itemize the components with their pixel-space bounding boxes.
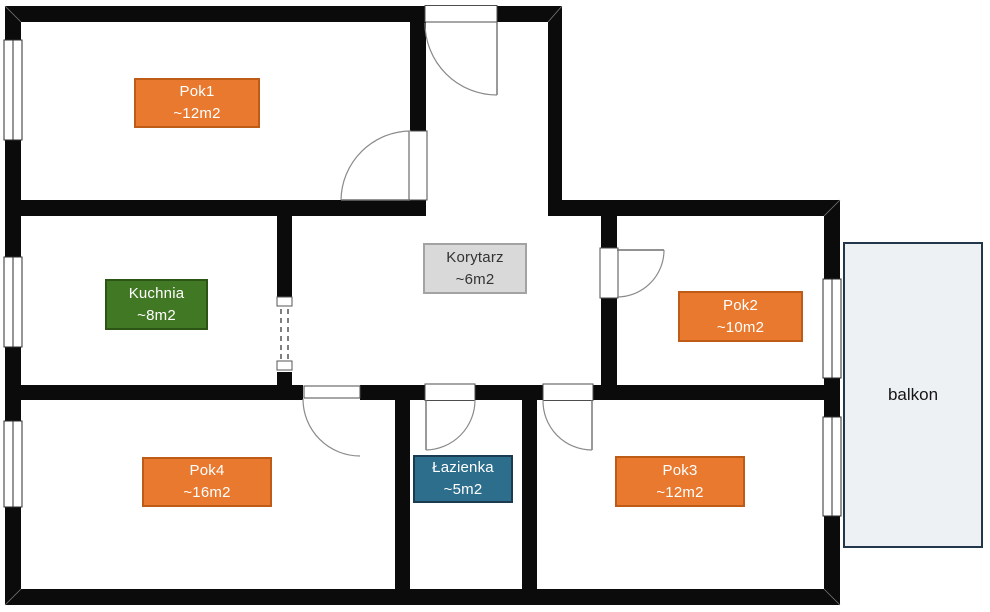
floorplan: Pok1 ~12m2 Kuchnia ~8m2 Korytarz ~6m2 Po… [0,0,990,612]
kitchen-opening [276,297,293,372]
wall-mid-horizontal [5,385,840,400]
wall-top-left [5,6,425,22]
door-pok1 [341,131,427,200]
entrance-door [425,6,497,96]
window-kuchnia [4,257,22,347]
window-pok1 [4,40,22,140]
room-label-pok1: Pok1 ~12m2 [134,78,260,128]
balcony: balkon [843,242,983,548]
wall-top-right-horizontal [548,200,840,216]
room-name: Pok4 [190,460,225,482]
wall-bottom-outer [5,589,840,605]
room-label-korytarz: Korytarz ~6m2 [423,243,527,294]
room-name: Pok1 [180,81,215,103]
room-area: ~6m2 [456,269,495,291]
wall-bathroom-right [522,400,537,594]
room-name: Kuchnia [129,283,185,305]
room-name: Korytarz [446,247,503,269]
door-bathroom [425,384,475,450]
room-name: Pok2 [723,295,758,317]
room-area: ~5m2 [444,479,483,501]
door-pok3 [543,384,593,450]
room-label-pok2: Pok2 ~10m2 [678,291,803,342]
wall-right-outer [824,200,840,605]
room-area: ~12m2 [173,103,220,125]
balcony-label: balkon [888,385,938,405]
room-label-pok3: Pok3 ~12m2 [615,456,745,507]
wall-corridor-right-upper [548,6,562,216]
door-pok4 [303,384,360,456]
window-pok3 [823,417,841,516]
room-label-lazienka: Łazienka ~5m2 [413,455,513,503]
room-area: ~8m2 [137,305,176,327]
wall-bathroom-left [395,400,410,594]
room-area: ~10m2 [717,317,764,339]
room-area: ~12m2 [656,482,703,504]
wall-pok2-left [601,216,617,400]
room-area: ~16m2 [183,482,230,504]
room-name: Pok3 [663,460,698,482]
room-name: Łazienka [432,457,494,479]
room-label-pok4: Pok4 ~16m2 [142,457,272,507]
wall-pok1-bottom [5,200,426,216]
door-pok2 [600,248,664,298]
room-label-kuchnia: Kuchnia ~8m2 [105,279,208,330]
balcony-door-pok2 [823,279,841,378]
window-pok4 [4,421,22,507]
